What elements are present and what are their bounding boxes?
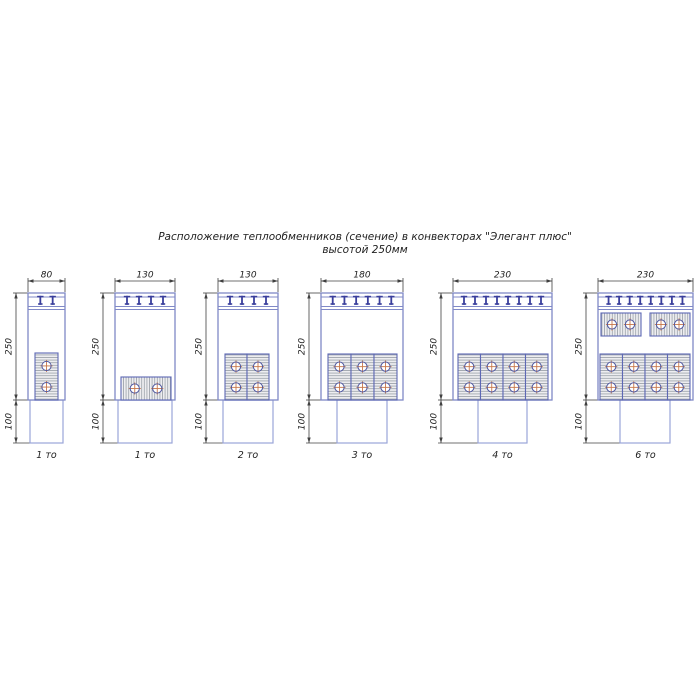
diagram-caption: 4 то [492, 450, 513, 461]
profile-foot [50, 303, 54, 305]
dim-arrow [307, 293, 310, 299]
dim-arrow [439, 293, 442, 299]
dim-arrow [453, 279, 459, 282]
bottom-duct [118, 400, 172, 443]
dim-arrow [204, 438, 207, 444]
profile-foot [38, 303, 42, 305]
dim-arrow [584, 400, 587, 406]
profile-foot [606, 303, 610, 305]
duct-height-dimension-label: 100 [92, 413, 102, 430]
profile-foot [125, 303, 129, 305]
profile-foot [462, 303, 466, 305]
profile-foot [377, 303, 381, 305]
dim-arrow [398, 279, 404, 282]
dim-arrow [547, 279, 553, 282]
dim-arrow [439, 400, 442, 406]
profile-foot [137, 303, 141, 305]
dim-arrow [204, 395, 207, 401]
width-dimension-label: 230 [494, 271, 511, 281]
duct-height-dimension-label: 100 [5, 413, 15, 430]
dim-arrow [14, 395, 17, 401]
duct-height-dimension-label: 100 [298, 413, 308, 430]
dim-arrow [14, 400, 17, 406]
dim-arrow [28, 279, 34, 282]
dim-arrow [584, 438, 587, 444]
dim-arrow [101, 438, 104, 444]
body-height-dimension-label: 250 [5, 338, 15, 355]
body-height-dimension-label: 250 [92, 338, 102, 355]
profile-foot [473, 303, 477, 305]
body-height-dimension-label: 250 [195, 338, 205, 355]
dim-arrow [14, 293, 17, 299]
profile-foot [149, 303, 153, 305]
profile-foot [638, 303, 642, 305]
profile-foot [680, 303, 684, 305]
dim-arrow [273, 279, 279, 282]
width-dimension-label: 130 [239, 271, 256, 281]
dim-arrow [101, 400, 104, 406]
body-height-dimension-label: 250 [298, 338, 308, 355]
profile-foot [264, 303, 268, 305]
body-height-dimension-label: 250 [575, 338, 585, 355]
dim-arrow [115, 279, 121, 282]
dim-arrow [321, 279, 327, 282]
dim-arrow [307, 395, 310, 401]
profile-foot [539, 303, 543, 305]
dim-arrow [598, 279, 604, 282]
dim-arrow [101, 395, 104, 401]
dim-arrow [307, 438, 310, 444]
width-dimension-label: 80 [41, 271, 53, 281]
dim-arrow [14, 438, 17, 444]
profile-foot [670, 303, 674, 305]
convector-diagram-2: 1302501001 то [92, 271, 176, 462]
profile-foot [659, 303, 663, 305]
heat-exchanger-block [121, 377, 171, 400]
dim-arrow [584, 395, 587, 401]
convector-diagram-4: 1802501003 то [298, 271, 404, 462]
body-height-dimension-label: 250 [430, 338, 440, 355]
convector-diagram-6: 2302501006 то [575, 271, 694, 462]
dim-arrow [170, 279, 176, 282]
profile-foot [517, 303, 521, 305]
duct-height-dimension-label: 100 [195, 413, 205, 430]
convector-diagram-5: 2302501004 то [430, 271, 553, 462]
profile-foot [528, 303, 532, 305]
profile-foot [252, 303, 256, 305]
profile-foot [366, 303, 370, 305]
dim-arrow [101, 293, 104, 299]
profile-foot [627, 303, 631, 305]
profile-foot [342, 303, 346, 305]
dim-arrow [688, 279, 694, 282]
duct-height-dimension-label: 100 [430, 413, 440, 430]
bottom-duct [478, 400, 527, 443]
diagram-caption: 3 то [352, 450, 373, 461]
profile-foot [495, 303, 499, 305]
convector-sections-drawing: 802501001 то1302501001 то1302501002 то18… [0, 0, 700, 700]
profile-foot [484, 303, 488, 305]
dim-arrow [307, 400, 310, 406]
dim-arrow [204, 400, 207, 406]
convector-diagram-3: 1302501002 то [195, 271, 279, 462]
dim-arrow [584, 293, 587, 299]
diagram-caption: 6 то [635, 450, 656, 461]
dim-arrow [439, 395, 442, 401]
dim-arrow [60, 279, 66, 282]
drawing-canvas: Расположение теплообменников (сечение) в… [0, 0, 700, 700]
profile-foot [649, 303, 653, 305]
convector-diagram-1: 802501001 то [5, 271, 66, 462]
width-dimension-label: 230 [637, 271, 654, 281]
width-dimension-label: 180 [353, 271, 370, 281]
bottom-duct [620, 400, 670, 443]
duct-height-dimension-label: 100 [575, 413, 585, 430]
profile-foot [506, 303, 510, 305]
profile-foot [617, 303, 621, 305]
profile-foot [161, 303, 165, 305]
dim-arrow [218, 279, 224, 282]
width-dimension-label: 130 [136, 271, 153, 281]
profile-foot [331, 303, 335, 305]
dim-arrow [439, 438, 442, 444]
dim-arrow [204, 293, 207, 299]
profile-foot [354, 303, 358, 305]
diagram-caption: 1 то [36, 450, 57, 461]
profile-foot [228, 303, 232, 305]
bottom-duct [30, 400, 63, 443]
bottom-duct [337, 400, 387, 443]
profile-foot [240, 303, 244, 305]
bottom-duct [223, 400, 273, 443]
diagram-caption: 2 то [238, 450, 259, 461]
diagram-caption: 1 то [135, 450, 156, 461]
profile-foot [389, 303, 393, 305]
